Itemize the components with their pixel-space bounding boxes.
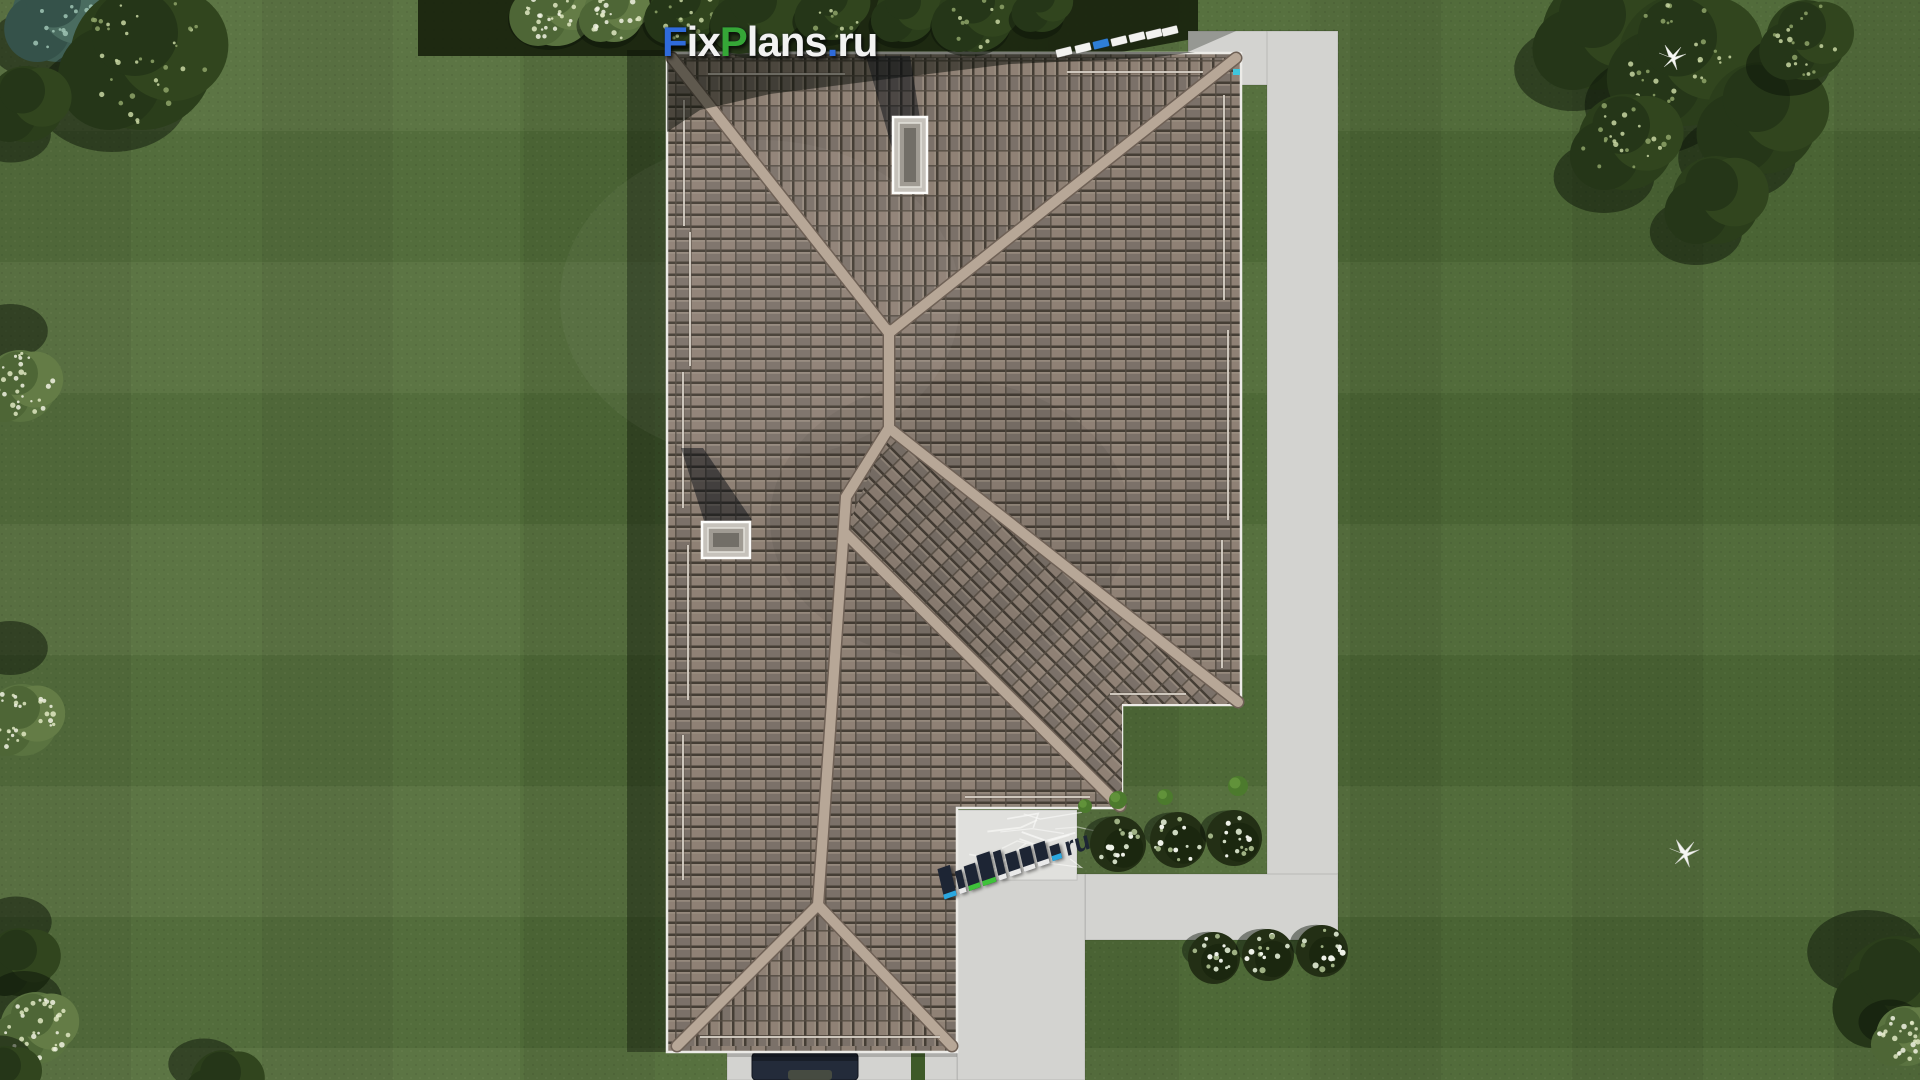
vent-marker	[1233, 69, 1240, 75]
wm3-dot	[1049, 843, 1062, 861]
logo-dot: .	[827, 18, 838, 66]
roof-shade-soft	[770, 380, 1130, 660]
parked-car	[752, 1053, 858, 1080]
logo-f: F	[662, 18, 687, 66]
driveway	[957, 874, 1085, 1080]
logo-ru: ru	[837, 18, 877, 66]
aerial-site-render: FixPlans.ru ru	[0, 0, 1920, 1080]
scene-canvas	[0, 0, 1920, 1080]
logo-lans: lans	[747, 18, 827, 66]
path-vertical-leg	[1267, 31, 1338, 940]
logo-ix: ix	[687, 18, 720, 66]
logo-p: P	[720, 18, 747, 66]
wm3-block-s	[1033, 841, 1050, 867]
wm3-ru-text: ru	[1062, 829, 1091, 857]
watermark-top-logo: FixPlans.ru	[662, 18, 877, 66]
wm3-block-n	[1019, 846, 1036, 872]
wm3-block-a	[1005, 850, 1022, 876]
